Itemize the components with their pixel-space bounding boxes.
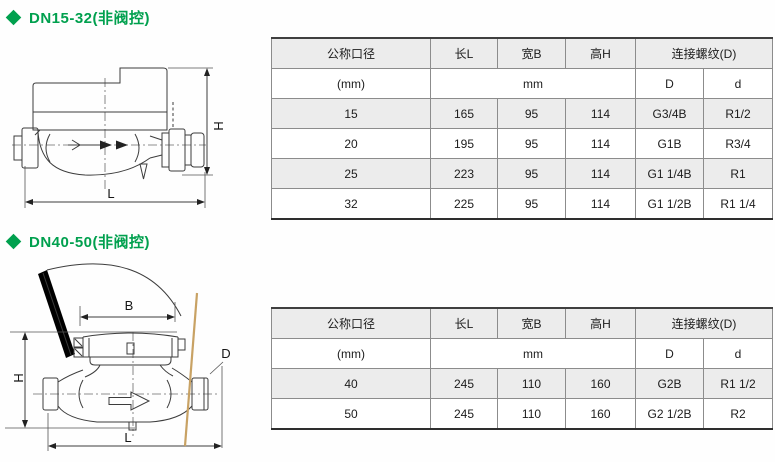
col-header-height: 高H	[566, 38, 636, 69]
cell: 165	[431, 99, 498, 129]
cell: G2B	[636, 369, 704, 399]
table-row: 15 165 95 114 G3/4B R1/2	[272, 99, 773, 129]
cell: 160	[566, 399, 636, 430]
unit-cell: (mm)	[272, 339, 431, 369]
cell: G1 1/2B	[636, 189, 704, 220]
section-title-dn40-50: DN40-50(非阀控)	[8, 231, 150, 252]
table-row: 25 223 95 114 G1 1/4B R1	[272, 159, 773, 189]
tan-annotation-line	[185, 293, 197, 446]
cell: 160	[566, 369, 636, 399]
table-row: 20 195 95 114 G1B R3/4	[272, 129, 773, 159]
thread-callout-d: D	[210, 346, 231, 374]
table-header-row: 公称口径 长L 宽B 高H 连接螺纹(D)	[272, 308, 773, 339]
col-header-width: 宽B	[498, 38, 566, 69]
cell: R1	[704, 159, 773, 189]
spec-table-dn40-50: 公称口径 长L 宽B 高H 连接螺纹(D) (mm) mm D d 40 245…	[271, 307, 773, 430]
col-header-length: 长L	[431, 308, 498, 339]
cell: R1 1/4	[704, 189, 773, 220]
cell: 195	[431, 129, 498, 159]
table-row: 50 245 110 160 G2 1/2B R2	[272, 399, 773, 430]
unit-cell: D	[636, 339, 704, 369]
unit-cell: mm	[431, 69, 636, 99]
cell: R1/2	[704, 99, 773, 129]
dn15-32-technical-drawing: H L	[10, 40, 235, 220]
col-header-thread: 连接螺纹(D)	[636, 308, 773, 339]
page: DN15-32(非阀控)	[0, 0, 775, 462]
unit-cell: d	[704, 69, 773, 99]
section-title-text: DN40-50(非阀控)	[29, 231, 150, 252]
cell: 110	[498, 399, 566, 430]
cell: G2 1/2B	[636, 399, 704, 430]
diamond-bullet-icon	[6, 10, 22, 26]
table-unit-row: (mm) mm D d	[272, 339, 773, 369]
dimension-label-h: H	[211, 121, 226, 130]
cell: 245	[431, 399, 498, 430]
dimension-b: B	[80, 298, 175, 326]
cell: 20	[272, 129, 431, 159]
centerlines	[12, 78, 206, 190]
unit-cell: d	[704, 339, 773, 369]
cell: 95	[498, 189, 566, 220]
cell: 95	[498, 99, 566, 129]
cell: 25	[272, 159, 431, 189]
col-header-diameter: 公称口径	[272, 308, 431, 339]
unit-cell: mm	[431, 339, 636, 369]
unit-cell: (mm)	[272, 69, 431, 99]
cell: 110	[498, 369, 566, 399]
col-header-length: 长L	[431, 38, 498, 69]
table-unit-row: (mm) mm D d	[272, 69, 773, 99]
cell: G1B	[636, 129, 704, 159]
col-header-height: 高H	[566, 308, 636, 339]
meter-outline	[14, 68, 204, 179]
cell: 114	[566, 99, 636, 129]
cell: 40	[272, 369, 431, 399]
table-row: 32 225 95 114 G1 1/2B R1 1/4	[272, 189, 773, 220]
flow-arrow-icon	[109, 392, 149, 410]
table-header-row: 公称口径 长L 宽B 高H 连接螺纹(D)	[272, 38, 773, 69]
cell: R3/4	[704, 129, 773, 159]
cell: 223	[431, 159, 498, 189]
cell: 95	[498, 159, 566, 189]
col-header-thread: 连接螺纹(D)	[636, 38, 773, 69]
cell: 50	[272, 399, 431, 430]
cell: G1 1/4B	[636, 159, 704, 189]
cell: R1 1/2	[704, 369, 773, 399]
section-title-dn15-32: DN15-32(非阀控)	[8, 7, 150, 28]
dimension-label-h: H	[11, 373, 26, 382]
dimension-label-l: L	[124, 430, 131, 445]
dimension-l: L	[25, 166, 205, 208]
dimension-label-l: L	[107, 186, 114, 201]
dimension-h: H	[168, 68, 226, 175]
col-header-width: 宽B	[498, 308, 566, 339]
spec-table-dn15-32: 公称口径 长L 宽B 高H 连接螺纹(D) (mm) mm D d 15 165…	[271, 37, 773, 220]
cell: G3/4B	[636, 99, 704, 129]
unit-cell: D	[636, 69, 704, 99]
open-lid	[38, 264, 181, 358]
cell: 95	[498, 129, 566, 159]
cell: 114	[566, 129, 636, 159]
cell: 32	[272, 189, 431, 220]
cell: 114	[566, 159, 636, 189]
table-row: 40 245 110 160 G2B R1 1/2	[272, 369, 773, 399]
cell: R2	[704, 399, 773, 430]
dimension-label-d: D	[221, 346, 230, 361]
dimension-h: H	[5, 332, 177, 428]
dn40-50-technical-drawing: B H L D	[5, 258, 240, 458]
flow-arrow-icon	[68, 140, 128, 150]
dimension-label-b: B	[125, 298, 134, 313]
cell: 15	[272, 99, 431, 129]
cell: 114	[566, 189, 636, 220]
section-title-text: DN15-32(非阀控)	[29, 7, 150, 28]
col-header-diameter: 公称口径	[272, 38, 431, 69]
diamond-bullet-icon	[6, 234, 22, 250]
cell: 225	[431, 189, 498, 220]
cell: 245	[431, 369, 498, 399]
